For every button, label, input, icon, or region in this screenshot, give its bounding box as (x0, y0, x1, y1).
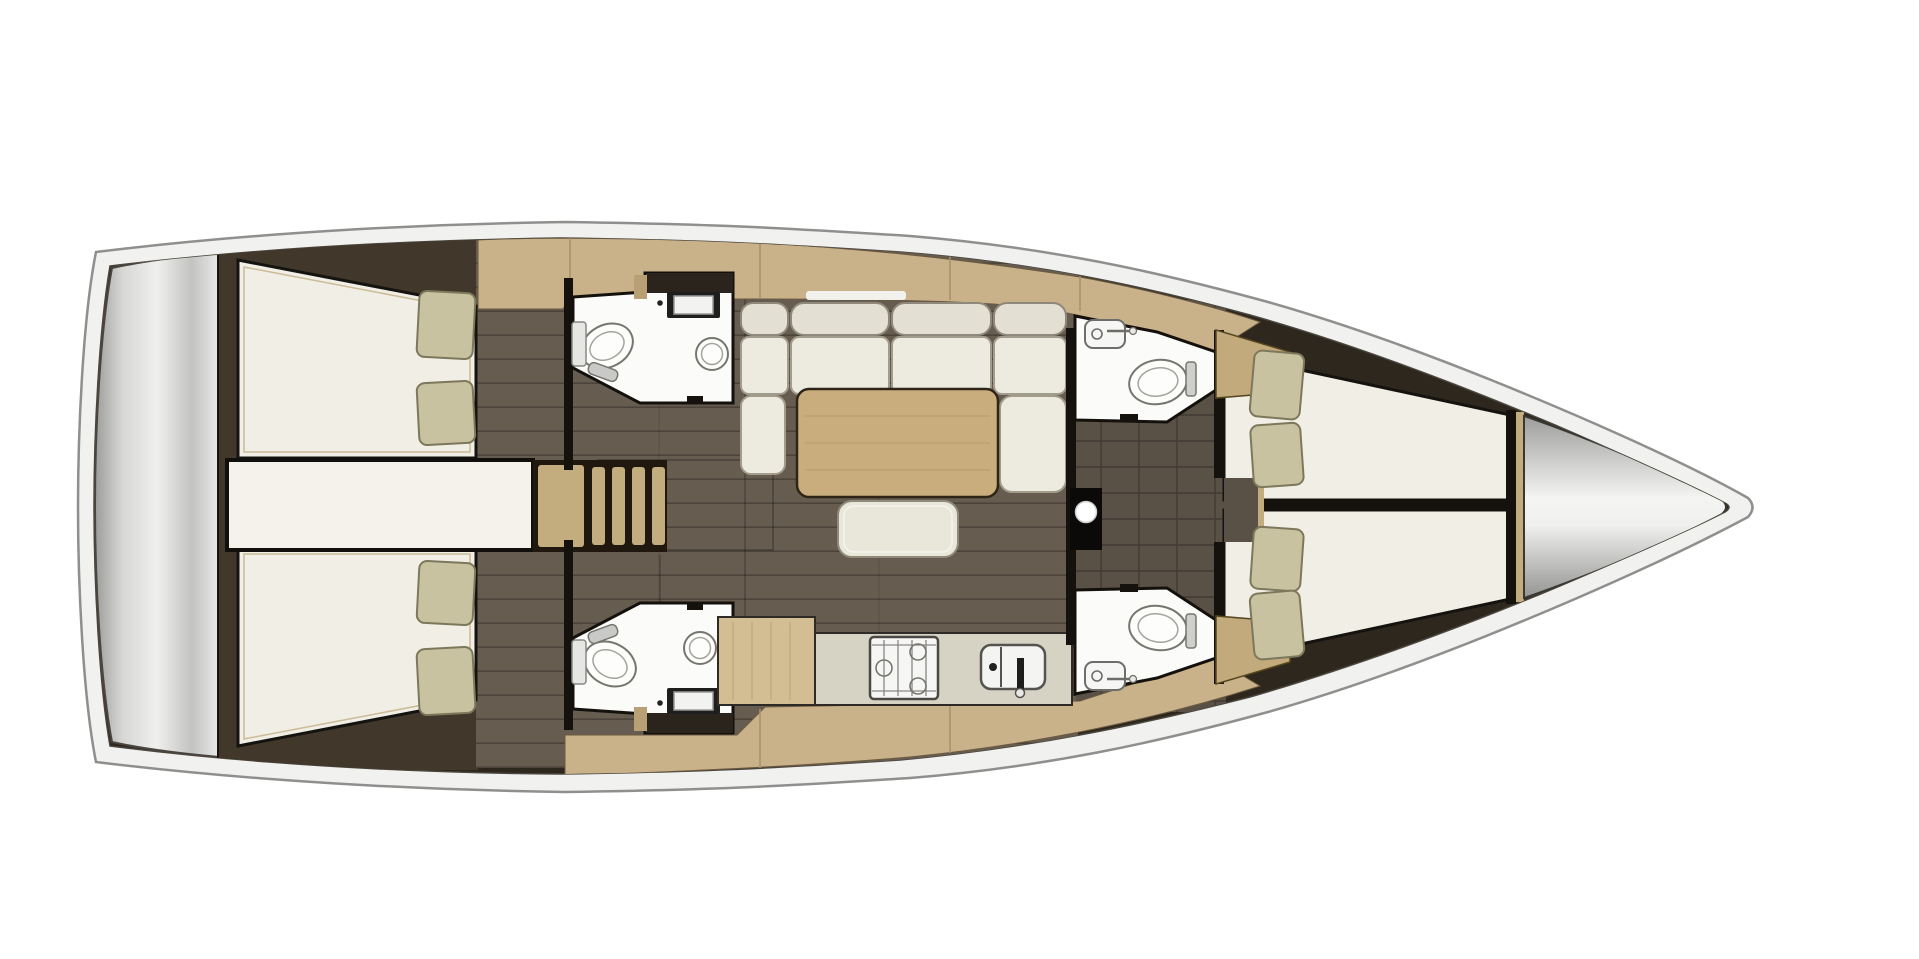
door-hinge (1120, 584, 1138, 592)
pillow (416, 647, 475, 716)
pillow (1249, 590, 1305, 660)
cistern (1186, 362, 1196, 396)
settee-left-return (741, 396, 785, 474)
deck-hatch-strip (806, 291, 906, 300)
cabinet-trim (634, 707, 647, 731)
stove (870, 637, 938, 699)
cistern (1186, 614, 1196, 648)
pillow (1249, 350, 1305, 420)
ottoman (838, 501, 958, 557)
door-hinge (687, 602, 703, 610)
vanity-cabinet (647, 273, 733, 293)
engine-hatch (227, 460, 533, 550)
swim-platform (95, 253, 219, 757)
settee-chaise (1000, 396, 1066, 492)
pillow (1250, 526, 1304, 591)
washbasin-bowl (674, 296, 713, 314)
faucet-base (1016, 689, 1025, 698)
ladder-step (612, 467, 625, 545)
settee-seat-cushion (791, 337, 889, 394)
cabinet-trim (634, 275, 647, 299)
vanity-cabinet (647, 713, 733, 733)
companionway (533, 460, 667, 552)
ladder-step (632, 467, 645, 545)
washbasin (1085, 320, 1125, 348)
cistern (572, 322, 586, 366)
bow-trim (1516, 412, 1524, 602)
boat-floor-plan (0, 0, 1919, 959)
settee-back-cushion (892, 303, 991, 335)
ladder-landing (538, 465, 584, 547)
engine-compartment (227, 460, 551, 550)
pillow (1250, 422, 1304, 487)
settee-seat-cushion (892, 337, 991, 394)
floor-plan-canvas (0, 0, 1919, 959)
ladder-step (652, 467, 665, 545)
settee-back-cushion (791, 303, 889, 335)
berth-centerline (1224, 499, 1518, 511)
washbasin-bowl (674, 692, 713, 710)
pillow (416, 291, 475, 360)
settee-seat-cushion (994, 337, 1066, 394)
mast-section-icon (1076, 502, 1097, 523)
faucet-knob (1130, 676, 1137, 683)
faucet (1017, 658, 1024, 690)
washbasin (1085, 662, 1125, 690)
transom (95, 250, 222, 762)
settee-back-cushion (741, 303, 788, 335)
drain-icon (989, 663, 997, 671)
cabin-entry-floor (1224, 478, 1258, 542)
salon-table (797, 389, 998, 497)
pillow (416, 381, 475, 446)
faucet-knob (1130, 328, 1137, 335)
pillow (416, 561, 475, 626)
tap-icon (657, 700, 663, 706)
settee-seat-cushion (741, 337, 788, 394)
door-hinge (687, 396, 703, 404)
door-hinge (1120, 414, 1138, 422)
mast-post (1070, 488, 1102, 550)
galley-sink (981, 645, 1045, 698)
bow-bulkhead (1506, 410, 1516, 604)
settee-back-cushion (994, 303, 1066, 335)
cistern (572, 640, 586, 684)
tap-icon (657, 300, 663, 306)
ladder-step (592, 467, 605, 545)
